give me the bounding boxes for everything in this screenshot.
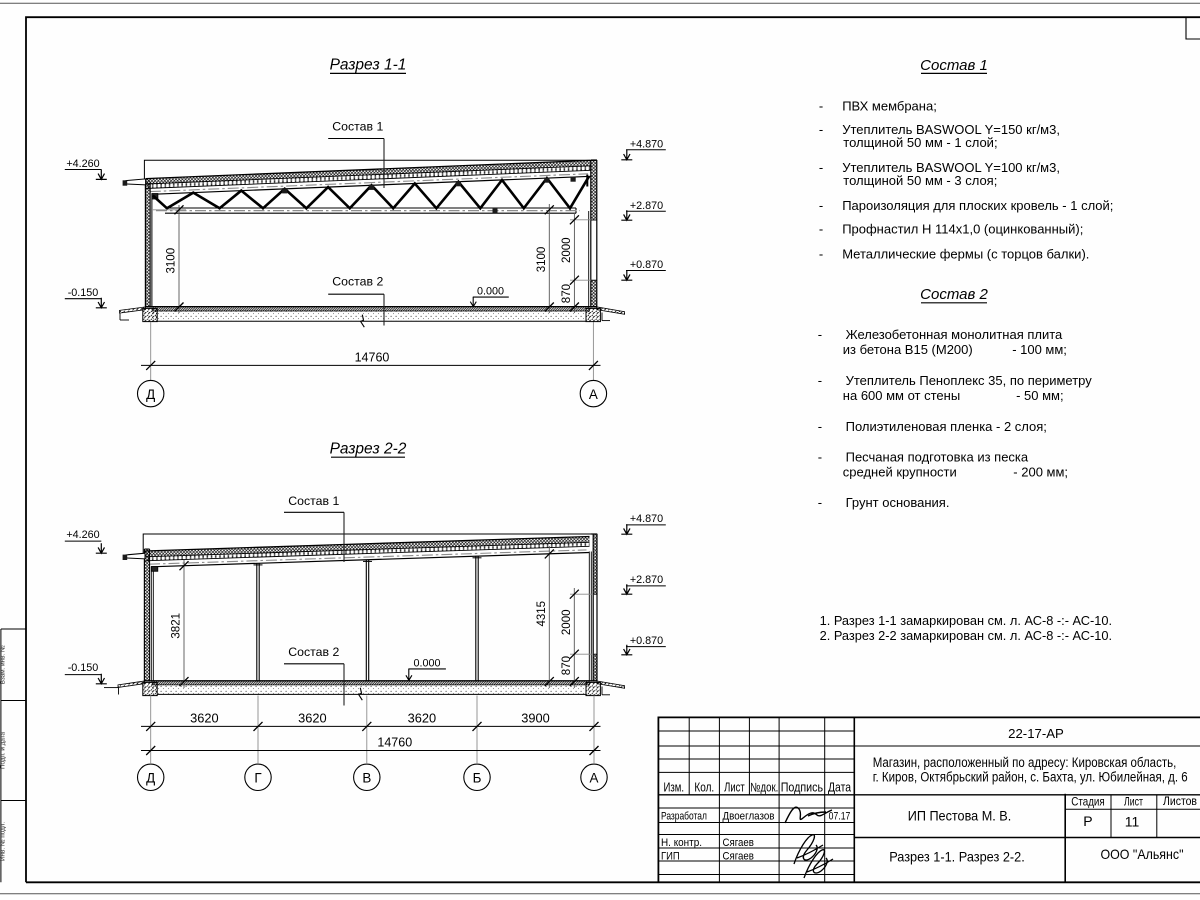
svg-text:Д: Д bbox=[146, 771, 155, 786]
svg-text:14760: 14760 bbox=[355, 350, 390, 364]
svg-text:Г: Г bbox=[254, 771, 261, 786]
svg-text:Инв. № подл.: Инв. № подл. bbox=[0, 822, 7, 861]
svg-text:3900: 3900 bbox=[521, 710, 549, 725]
svg-text:3620: 3620 bbox=[190, 710, 218, 725]
svg-text:Полиэтиленовая пленка - 2 слоя: Полиэтиленовая пленка - 2 слоя; bbox=[846, 419, 1047, 434]
svg-text:Состав 2: Состав 2 bbox=[920, 286, 988, 303]
svg-text:Взам. инв. №: Взам. инв. № bbox=[0, 645, 7, 684]
svg-text:Состав 2: Состав 2 bbox=[332, 275, 383, 289]
svg-text:Состав 2: Состав 2 bbox=[288, 645, 339, 659]
svg-text:Профнастил Н 114х1,0 (оцинкова: Профнастил Н 114х1,0 (оцинкованный); bbox=[842, 222, 1083, 237]
svg-text:870: 870 bbox=[561, 656, 573, 675]
svg-text:Разрез 1-1. Разрез 2-2.: Разрез 1-1. Разрез 2-2. bbox=[889, 848, 1025, 864]
svg-text:870: 870 bbox=[561, 284, 573, 303]
svg-text:Состав 1: Состав 1 bbox=[288, 494, 339, 508]
svg-text:11: 11 bbox=[1125, 813, 1140, 829]
svg-text:+2.870: +2.870 bbox=[630, 574, 663, 586]
svg-text:3620: 3620 bbox=[298, 710, 326, 725]
svg-text:Состав 1: Состав 1 bbox=[920, 57, 988, 74]
svg-text:-: - bbox=[818, 449, 822, 464]
svg-text:Кол.: Кол. bbox=[694, 780, 714, 794]
svg-text:Металлические фермы (с торцов: Металлические фермы (с торцов балки). bbox=[842, 247, 1089, 262]
svg-text:Лист: Лист bbox=[1124, 794, 1143, 808]
svg-text:Разрез 1-1: Разрез 1-1 bbox=[330, 57, 407, 74]
svg-text:Д: Д bbox=[146, 387, 155, 402]
svg-text:Железобетонная монолитная пли: Железобетонная монолитная плита bbox=[846, 327, 1063, 342]
svg-text:-: - bbox=[819, 122, 823, 137]
svg-text:Стадия: Стадия bbox=[1071, 794, 1105, 808]
svg-text:Дата: Дата bbox=[828, 780, 851, 794]
svg-text:-0.150: -0.150 bbox=[68, 662, 99, 674]
svg-text:22-17-АР: 22-17-АР bbox=[1008, 726, 1064, 741]
svg-text:ООО "Альянс": ООО "Альянс" bbox=[1101, 846, 1184, 862]
svg-text:из бетона В15 (М200): из бетона В15 (М200) bbox=[843, 342, 973, 357]
svg-text:на 600 мм от стены: на 600 мм от стены bbox=[843, 388, 960, 403]
svg-text:2. Разрез 2-2 замаркирован см.: 2. Разрез 2-2 замаркирован см. л. АС-8 -… bbox=[820, 628, 1113, 643]
svg-text:Подпись: Подпись bbox=[781, 780, 824, 794]
svg-text:Песчаная подготовка из песка: Песчаная подготовка из песка bbox=[846, 449, 1029, 464]
svg-text:- 100 мм;: - 100 мм; bbox=[1012, 342, 1067, 357]
svg-text:Н. контр.: Н. контр. bbox=[661, 837, 702, 849]
svg-text:Сягаев: Сягаев bbox=[723, 837, 755, 849]
svg-text:- 50 мм;: - 50 мм; bbox=[1016, 388, 1064, 403]
svg-text:А: А bbox=[590, 771, 599, 786]
svg-text:Сягаев: Сягаев bbox=[723, 850, 755, 862]
svg-text:2000: 2000 bbox=[561, 237, 573, 263]
svg-text:+4.260: +4.260 bbox=[66, 529, 99, 541]
svg-text:А: А bbox=[589, 387, 598, 402]
svg-text:4315: 4315 bbox=[536, 601, 548, 627]
svg-text:Листов: Листов bbox=[1163, 794, 1197, 808]
svg-text:Р: Р bbox=[1083, 813, 1092, 829]
svg-text:-: - bbox=[818, 327, 822, 342]
svg-text:-: - bbox=[818, 495, 822, 510]
svg-text:2000: 2000 bbox=[561, 610, 573, 636]
svg-text:-: - bbox=[819, 222, 823, 237]
svg-text:-: - bbox=[818, 373, 822, 388]
svg-text:средней крупности: средней крупности bbox=[843, 464, 957, 479]
svg-text:ГИП: ГИП bbox=[661, 850, 680, 862]
svg-text:ИП Пестова М. В.: ИП Пестова М. В. bbox=[908, 807, 1012, 823]
svg-text:ПВХ мембрана;: ПВХ мембрана; bbox=[842, 99, 937, 114]
svg-text:+2.870: +2.870 bbox=[630, 200, 663, 212]
svg-text:Б: Б bbox=[473, 771, 482, 786]
svg-text:Изм.: Изм. bbox=[664, 780, 685, 794]
svg-text:-: - bbox=[818, 419, 822, 434]
svg-text:+4.870: +4.870 bbox=[630, 139, 663, 151]
svg-text:Подп. и дата: Подп. и дата bbox=[0, 731, 7, 769]
svg-text:-: - bbox=[819, 198, 823, 213]
svg-text:3100: 3100 bbox=[536, 247, 548, 273]
svg-text:Разработал: Разработал bbox=[661, 810, 707, 822]
svg-text:14760: 14760 bbox=[377, 735, 412, 749]
svg-text:- 200 мм;: - 200 мм; bbox=[1013, 464, 1068, 479]
svg-text:+4.260: +4.260 bbox=[66, 158, 99, 170]
svg-text:0.000: 0.000 bbox=[413, 657, 440, 669]
svg-text:№док.: №док. bbox=[750, 780, 778, 794]
svg-text:+0.870: +0.870 bbox=[630, 635, 663, 647]
svg-text:3100: 3100 bbox=[166, 248, 178, 274]
svg-text:Состав 1: Состав 1 bbox=[332, 120, 383, 134]
svg-text:В: В bbox=[362, 771, 371, 786]
svg-text:толщиной 50 мм - 1 слой;: толщиной 50 мм - 1 слой; bbox=[843, 135, 997, 150]
svg-text:+4.870: +4.870 bbox=[630, 513, 663, 525]
svg-text:толщиной 50 мм - 3 слоя;: толщиной 50 мм - 3 слоя; bbox=[843, 173, 997, 188]
svg-text:-: - bbox=[819, 247, 823, 262]
svg-text:Пароизоляция для плоских крове: Пароизоляция для плоских кровель - 1 сло… bbox=[842, 198, 1113, 213]
svg-text:-: - bbox=[819, 160, 823, 175]
svg-text:-0.150: -0.150 bbox=[68, 287, 99, 299]
svg-text:Лист: Лист bbox=[724, 780, 745, 794]
svg-text:3821: 3821 bbox=[171, 613, 183, 639]
svg-text:г. Киров, Октябрьский район, с: г. Киров, Октябрьский район, с. Бахта, у… bbox=[873, 769, 1188, 785]
svg-text:+0.870: +0.870 bbox=[630, 259, 663, 271]
svg-text:07.17: 07.17 bbox=[829, 810, 851, 822]
svg-text:Разрез 2-2: Разрез 2-2 bbox=[330, 440, 407, 457]
svg-text:3620: 3620 bbox=[408, 710, 436, 725]
svg-text:-: - bbox=[819, 99, 823, 114]
svg-text:Двоеглазов: Двоеглазов bbox=[723, 810, 775, 822]
svg-text:Грунт основания.: Грунт основания. bbox=[846, 495, 950, 510]
svg-text:Утеплитель Пеноплекс 35, по пе: Утеплитель Пеноплекс 35, по периметру bbox=[846, 373, 1093, 388]
svg-text:1. Разрез 1-1 замаркирован см.: 1. Разрез 1-1 замаркирован см. л. АС-8 -… bbox=[820, 613, 1113, 628]
svg-text:0.000: 0.000 bbox=[477, 285, 504, 297]
